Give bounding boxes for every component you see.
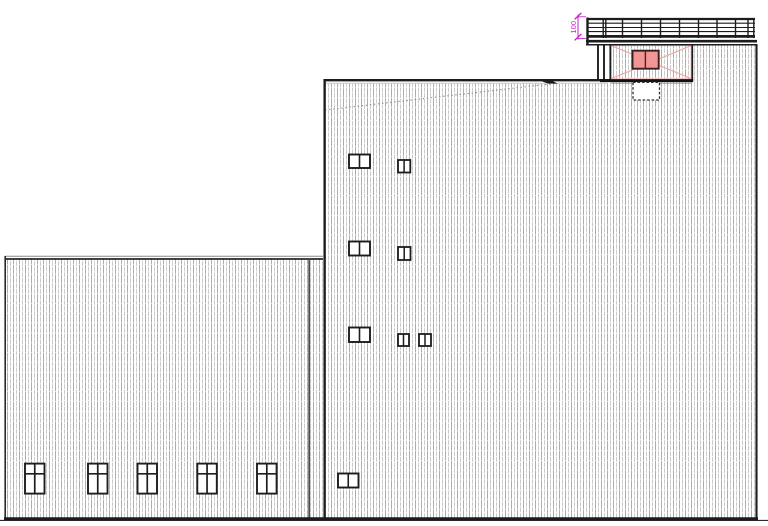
svg-text:100: 100 [569, 21, 578, 34]
